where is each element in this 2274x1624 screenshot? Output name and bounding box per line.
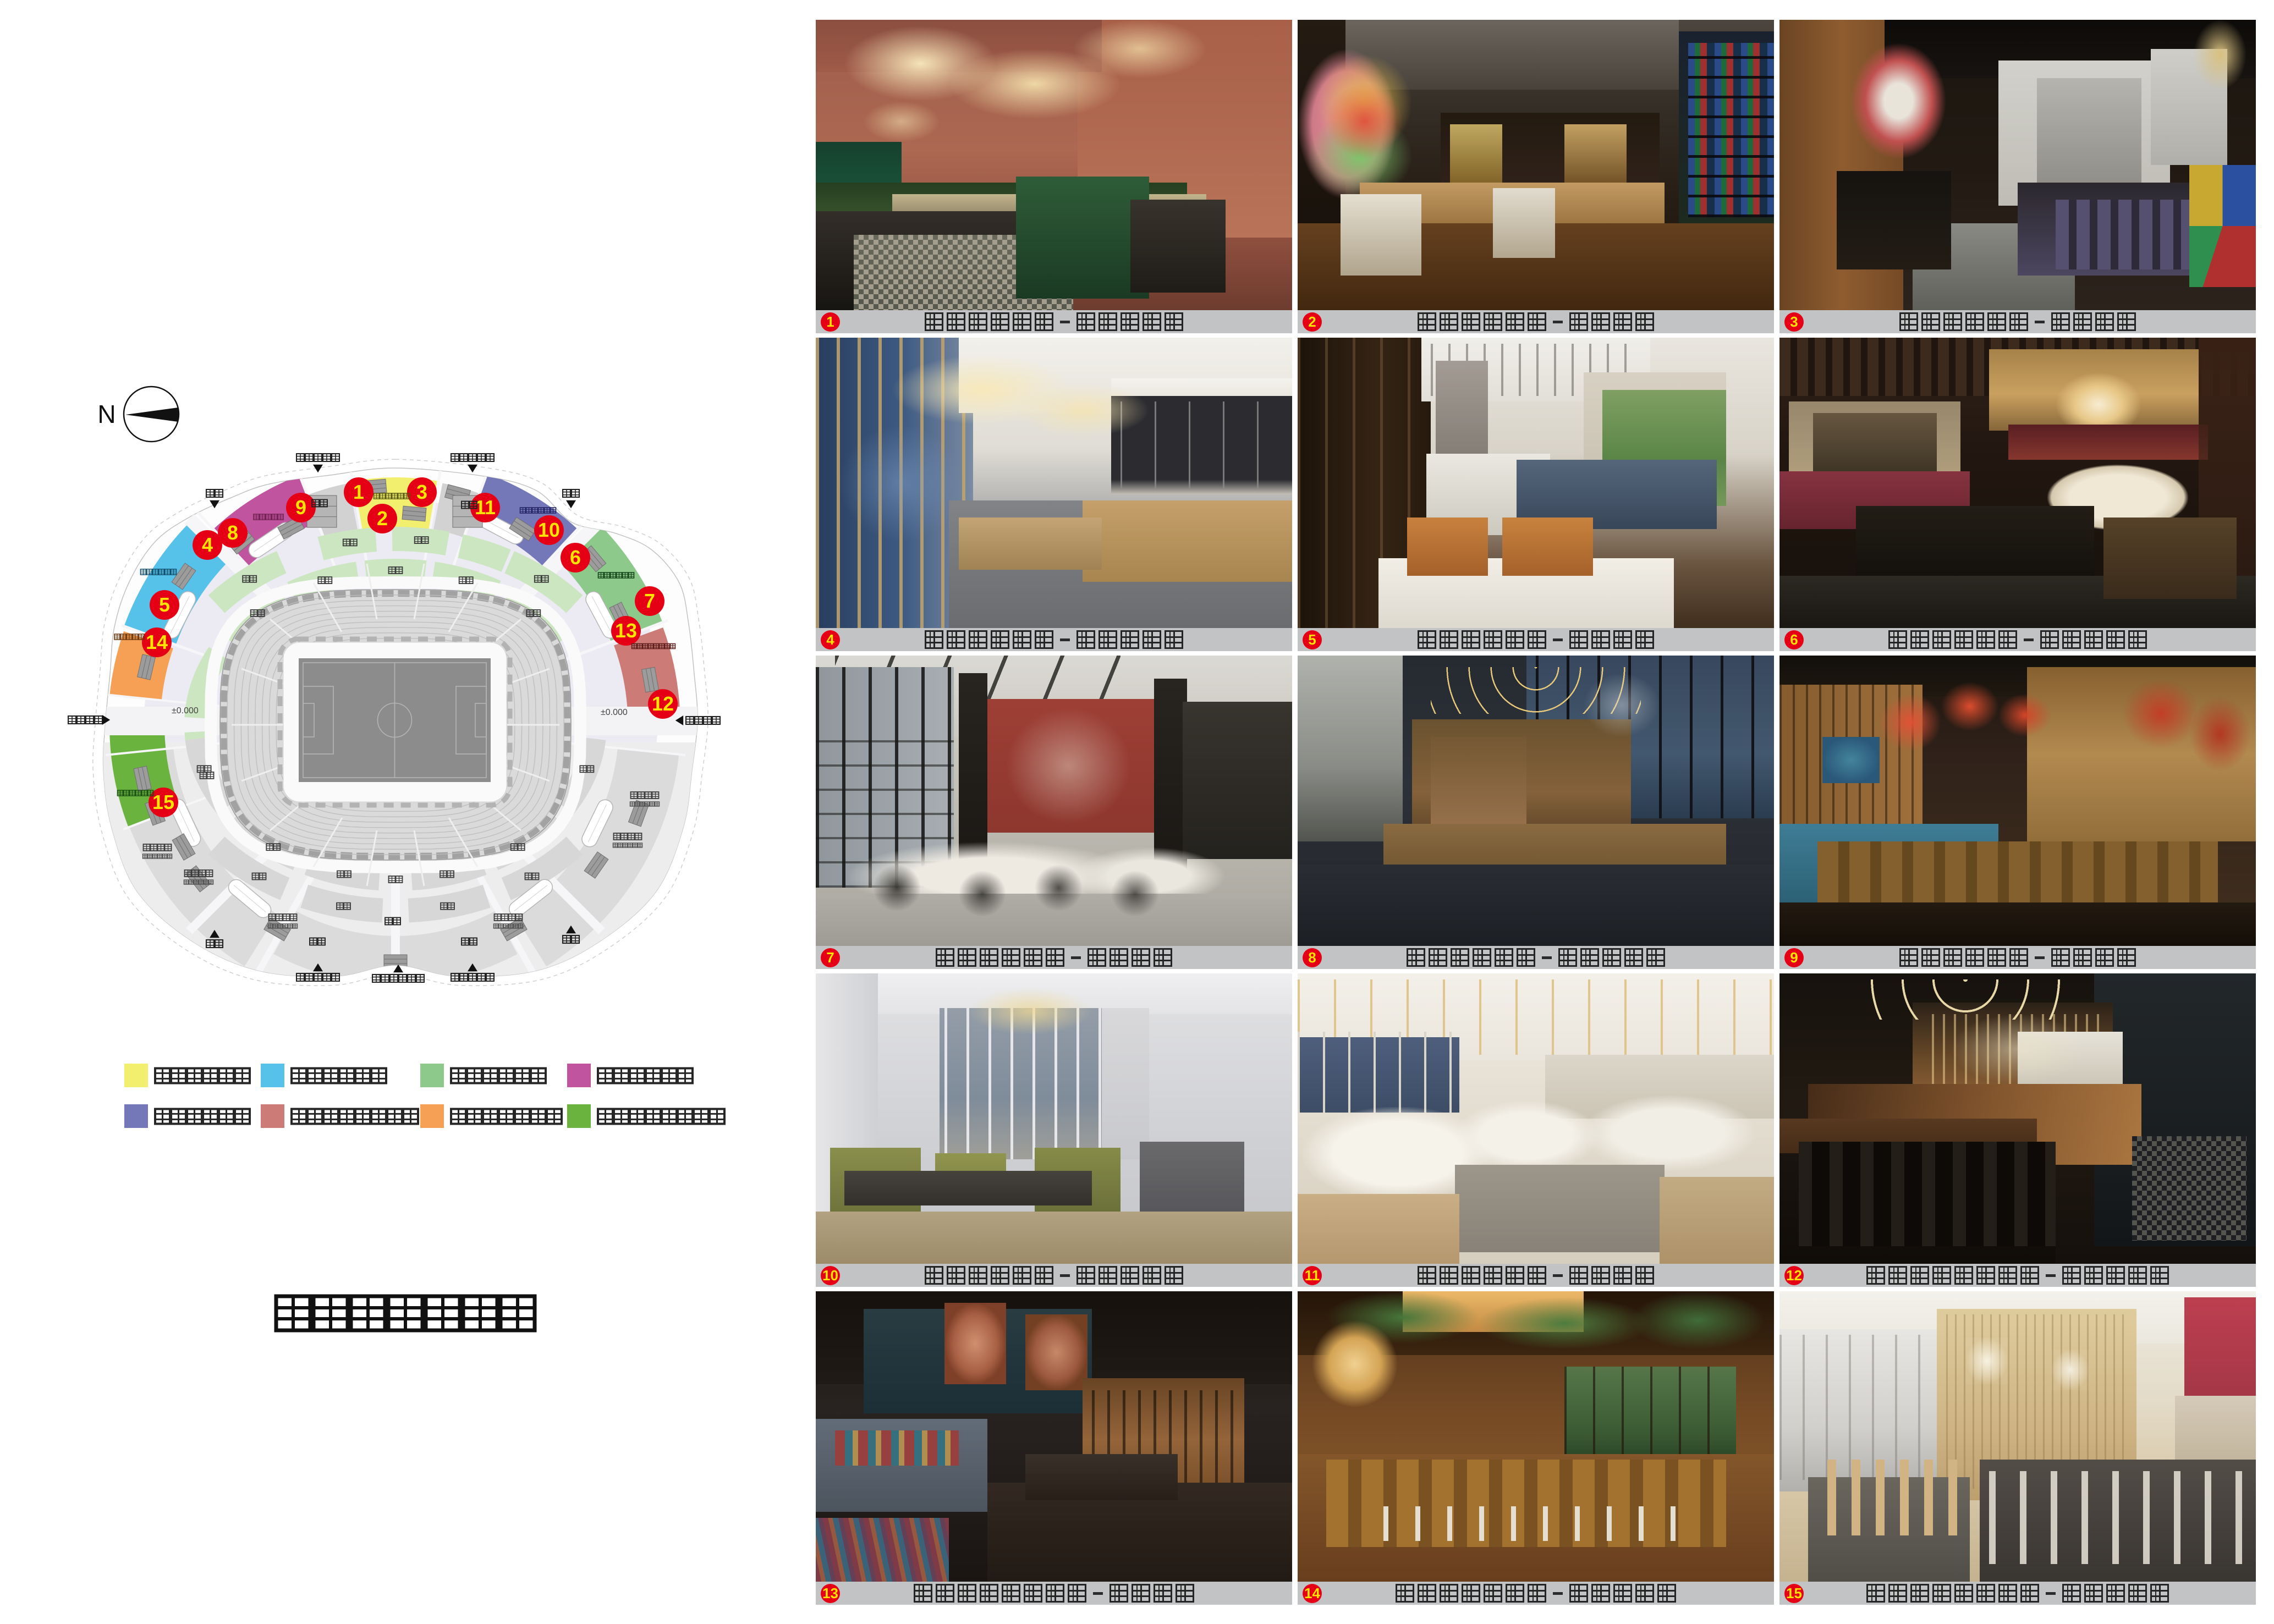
svg-text:14: 14 <box>146 631 168 653</box>
svg-text:11: 11 <box>475 496 496 519</box>
svg-text:10: 10 <box>538 519 560 541</box>
svg-text:1: 1 <box>353 481 364 503</box>
svg-text:N: N <box>97 400 116 428</box>
svg-text:15: 15 <box>152 791 174 813</box>
svg-text:±0.000: ±0.000 <box>172 706 199 715</box>
svg-text:9: 9 <box>295 496 306 519</box>
svg-text:5: 5 <box>159 593 170 616</box>
svg-text:±0.000: ±0.000 <box>601 708 628 717</box>
svg-text:8: 8 <box>227 521 238 544</box>
svg-text:12: 12 <box>652 692 674 715</box>
svg-text:6: 6 <box>570 546 581 569</box>
svg-text:13: 13 <box>615 619 637 642</box>
svg-text:2: 2 <box>377 507 388 530</box>
svg-text:4: 4 <box>202 533 213 556</box>
svg-text:7: 7 <box>644 590 655 612</box>
svg-text:3: 3 <box>416 481 427 503</box>
